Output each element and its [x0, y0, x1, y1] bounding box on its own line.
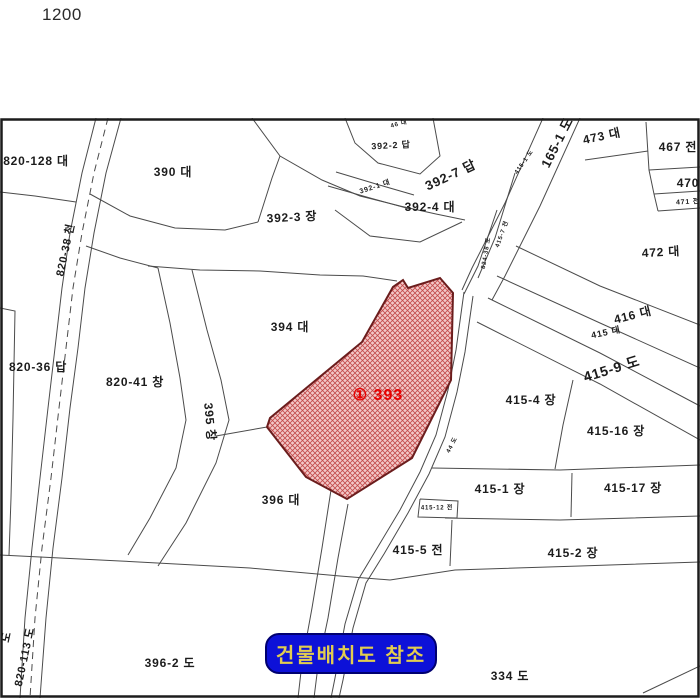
parcel-boundary-line	[445, 516, 700, 520]
parcel-label: 416 대	[612, 304, 653, 327]
parcel-label: 467 전	[659, 139, 697, 154]
parcel-label: 820-41 창	[106, 374, 164, 389]
parcel-label: 392-3 장	[266, 209, 317, 226]
parcel-boundary-line	[492, 118, 580, 300]
parcel-boundary-line	[555, 380, 573, 469]
parcel-label: 415-2 장	[548, 546, 599, 560]
parcel-label: 415-17 장	[604, 481, 662, 495]
parcel-boundary-line	[158, 270, 229, 566]
parcel-label: 470	[677, 176, 699, 190]
parcel-label: 415-7 전	[493, 219, 510, 248]
cadastral-map: 820-128 대390 대392-3 장392-2 답392-7 답392-1…	[0, 118, 700, 698]
parcel-boundary-line	[497, 276, 700, 368]
parcel-label: 165-1 도	[538, 118, 576, 170]
map-scale-label: 1200	[42, 5, 82, 25]
parcel-boundary-line	[216, 427, 267, 436]
building-layout-reference-button[interactable]: 건물배치도 참조	[265, 633, 437, 674]
highlighted-parcel-label: ① 393	[353, 387, 403, 404]
parcel-boundary-line	[462, 118, 543, 290]
parcel-boundary-line	[658, 208, 700, 211]
parcel-boundary-line	[654, 191, 700, 194]
parcel-label: 44 도	[445, 436, 459, 454]
parcel-boundary-line	[128, 268, 186, 555]
parcel-label: 471 전	[676, 196, 700, 206]
parcel-boundary-line	[40, 118, 121, 698]
parcel-boundary-line	[0, 192, 76, 202]
parcel-label: 392-4 대	[405, 200, 456, 214]
parcel-label: 824-38 도	[480, 237, 492, 270]
parcel-boundary-line	[432, 465, 700, 470]
parcel-label: 392-2 답	[371, 138, 411, 151]
cadastral-map-canvas: 820-128 대390 대392-3 장392-2 답392-7 답392-1…	[0, 118, 700, 698]
parcel-boundary-line	[0, 555, 390, 580]
parcel-boundary-line	[450, 520, 452, 566]
parcel-boundary-line	[390, 562, 700, 580]
parcel-boundary-line	[20, 118, 96, 698]
parcel-label: 392-7 답	[423, 157, 479, 194]
parcel-label: 415-1 도	[513, 149, 535, 176]
parcel-boundary-line	[585, 151, 648, 160]
parcel-boundary-line	[649, 167, 700, 170]
parcel-label: 390 대	[154, 165, 192, 179]
parcel-label: 820-128 대	[3, 154, 69, 168]
parcel-boundary-line	[643, 666, 700, 693]
parcel-label: 820-36 답	[9, 359, 67, 374]
parcel-boundary-line	[148, 266, 397, 281]
parcel-boundary-line	[90, 194, 258, 230]
parcel-label: 473 대	[582, 125, 622, 147]
parcel-label: 472 대	[641, 244, 680, 260]
parcel-label: 415-5 전	[393, 542, 444, 557]
parcel-label: 396-2 도	[145, 656, 196, 670]
parcel-boundary-line	[335, 210, 462, 242]
parcel-label: 334 도	[491, 669, 529, 683]
parcel-label: 820-38 천	[52, 222, 77, 278]
parcel-boundary-line	[646, 122, 658, 211]
parcel-label: 415-1 장	[475, 482, 526, 496]
parcel-label: 415-12 전	[421, 504, 453, 512]
parcel-label: 415-9 도	[581, 353, 641, 385]
parcel-boundary-line	[488, 298, 700, 406]
parcel-label: 396 대	[262, 493, 300, 507]
parcel-boundary-line	[30, 118, 108, 698]
parcel-label: 415-4 장	[506, 393, 557, 407]
parcel-boundary-line	[571, 473, 572, 517]
parcel-label: 395 창	[201, 402, 219, 442]
parcel-label: 394 대	[271, 320, 309, 334]
cadastral-map-page: 1200 820-128 대390 대392-3 장392-2 답392-7 답…	[0, 0, 700, 698]
parcel-label: 415-16 장	[587, 424, 645, 438]
parcel-label: 820-113 도	[12, 626, 37, 688]
parcel-boundary-line	[86, 246, 158, 268]
